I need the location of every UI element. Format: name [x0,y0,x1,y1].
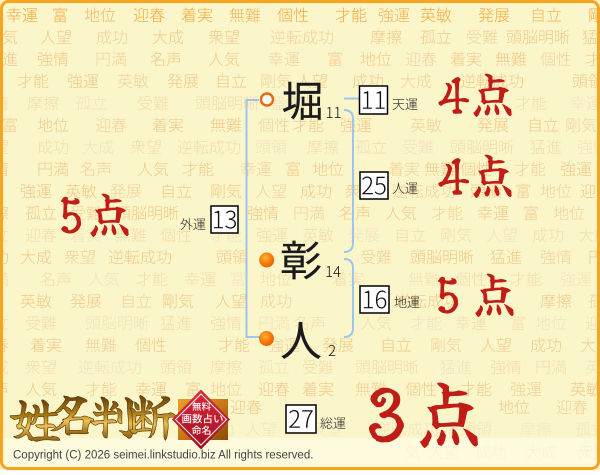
svg-text:Copyright (C) 2026 seimei.link: Copyright (C) 2026 seimei.linkstudio.biz… [13,450,313,462]
